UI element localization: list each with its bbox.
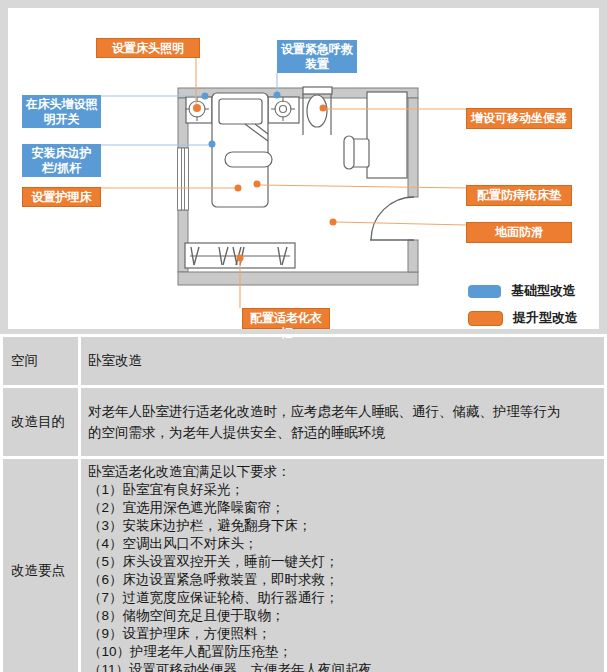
table-row: 改造要点 卧室适老化改造宜满足以下要求： （1）卧室宜有良好采光； （2）宜选用… (3, 459, 604, 672)
row-header-purpose: 改造目的 (3, 388, 78, 456)
legend-item-upgrade: 提升型改造 (468, 309, 578, 327)
callout-elderly-wardrobe: 配置适老化衣柜 (242, 308, 330, 329)
legend-label-upgrade: 提升型改造 (513, 309, 578, 327)
renovation-info-table: 空间 卧室改造 改造目的 对老年人卧室进行适老化改造时，应考虑老年人睡眠、通行、… (0, 334, 607, 672)
callout-anti-slip-floor: 地面防滑 (466, 222, 572, 243)
callout-nursing-bed: 设置护理床 (22, 187, 101, 207)
toilet-icon (303, 87, 332, 135)
callout-movable-toilet: 增设可移动坐便器 (466, 108, 572, 129)
desk-icon (367, 92, 407, 178)
callout-emergency-call: 设置紧急呼救装置 (277, 40, 357, 73)
row-content-keypoints: 卧室适老化改造宜满足以下要求： （1）卧室宜有良好采光； （2）宜选用深色遮光降… (81, 459, 604, 672)
renovation-diagram: 设置床头照明 设置紧急呼救装置 在床头增设照明开关 安装床边护栏/抓杆 设置护理… (0, 0, 607, 334)
door-icon (370, 197, 414, 240)
legend-label-basic: 基础型改造 (511, 282, 576, 300)
callout-light-switch: 在床头增设照明开关 (22, 95, 101, 128)
legend-swatch-upgrade (468, 311, 503, 326)
table-row: 改造目的 对老年人卧室进行适老化改造时，应考虑老年人睡眠、通行、储藏、护理等行为… (3, 388, 604, 456)
legend-swatch-basic (468, 285, 501, 298)
callout-anti-bedsore-mattress: 配置防痔疮床垫 (466, 185, 572, 206)
callout-bed-rail: 安装床边护栏/抓杆 (22, 144, 101, 177)
row-header-space: 空间 (3, 337, 78, 385)
bed-icon (212, 93, 272, 207)
row-content-purpose: 对老年人卧室进行适老化改造时，应考虑老年人睡眠、通行、储藏、护理等行为 的空间需… (81, 388, 604, 456)
legend-item-basic: 基础型改造 (468, 282, 576, 300)
row-header-keypoints: 改造要点 (3, 459, 78, 672)
table-row: 空间 卧室改造 (3, 337, 604, 385)
window-icon (178, 148, 189, 210)
row-content-space: 卧室改造 (81, 337, 604, 385)
callout-bedside-lighting: 设置床头照明 (96, 38, 200, 58)
chair-icon (344, 136, 369, 169)
